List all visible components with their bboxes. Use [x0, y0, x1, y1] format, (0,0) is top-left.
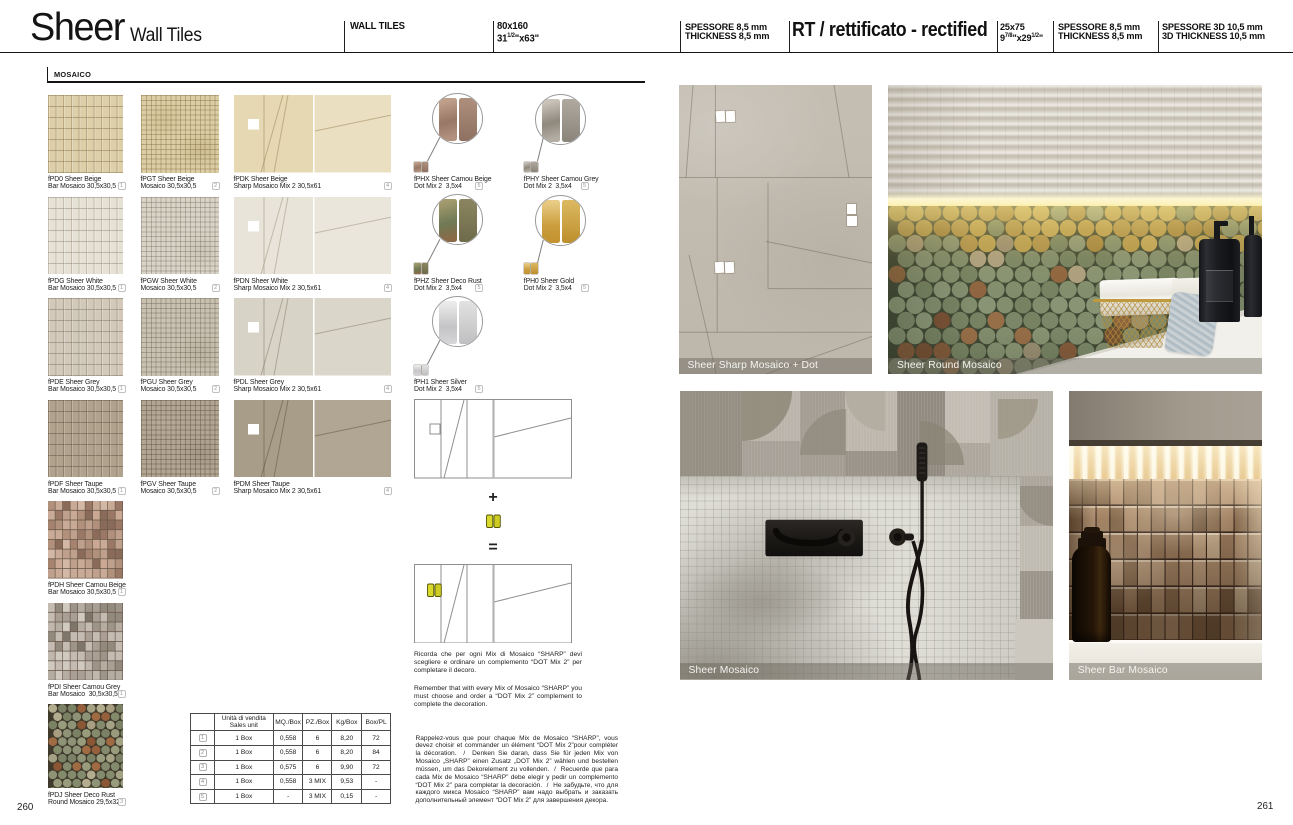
svg-text:+: +	[488, 489, 497, 506]
svg-text:=: =	[488, 539, 497, 556]
